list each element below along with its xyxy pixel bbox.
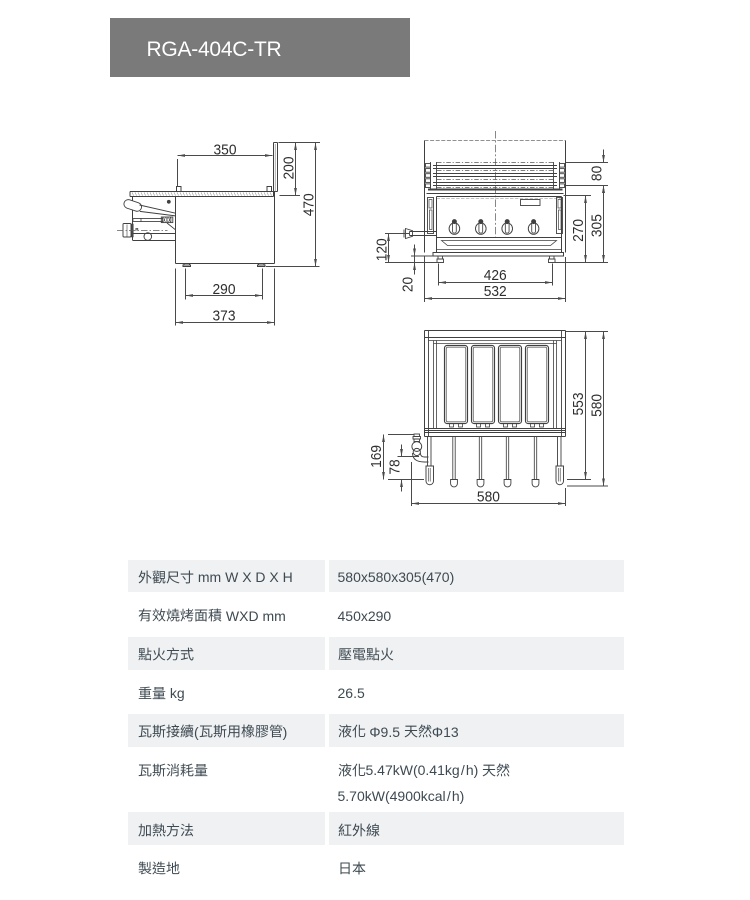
svg-text:80: 80	[589, 166, 606, 181]
svg-text:580: 580	[589, 394, 606, 417]
svg-text:305: 305	[589, 214, 606, 237]
svg-text:169: 169	[368, 445, 385, 468]
svg-text:350: 350	[214, 142, 237, 159]
svg-text:200: 200	[281, 157, 298, 180]
svg-text:120: 120	[374, 238, 391, 261]
svg-text:580: 580	[477, 489, 500, 506]
svg-text:20: 20	[400, 277, 417, 292]
svg-text:290: 290	[213, 281, 236, 298]
svg-text:270: 270	[570, 219, 587, 242]
svg-text:78: 78	[387, 459, 404, 474]
svg-text:373: 373	[213, 308, 236, 325]
svg-text:553: 553	[570, 393, 587, 416]
svg-text:532: 532	[484, 283, 507, 300]
svg-text:470: 470	[301, 193, 318, 216]
svg-text:426: 426	[484, 267, 507, 284]
